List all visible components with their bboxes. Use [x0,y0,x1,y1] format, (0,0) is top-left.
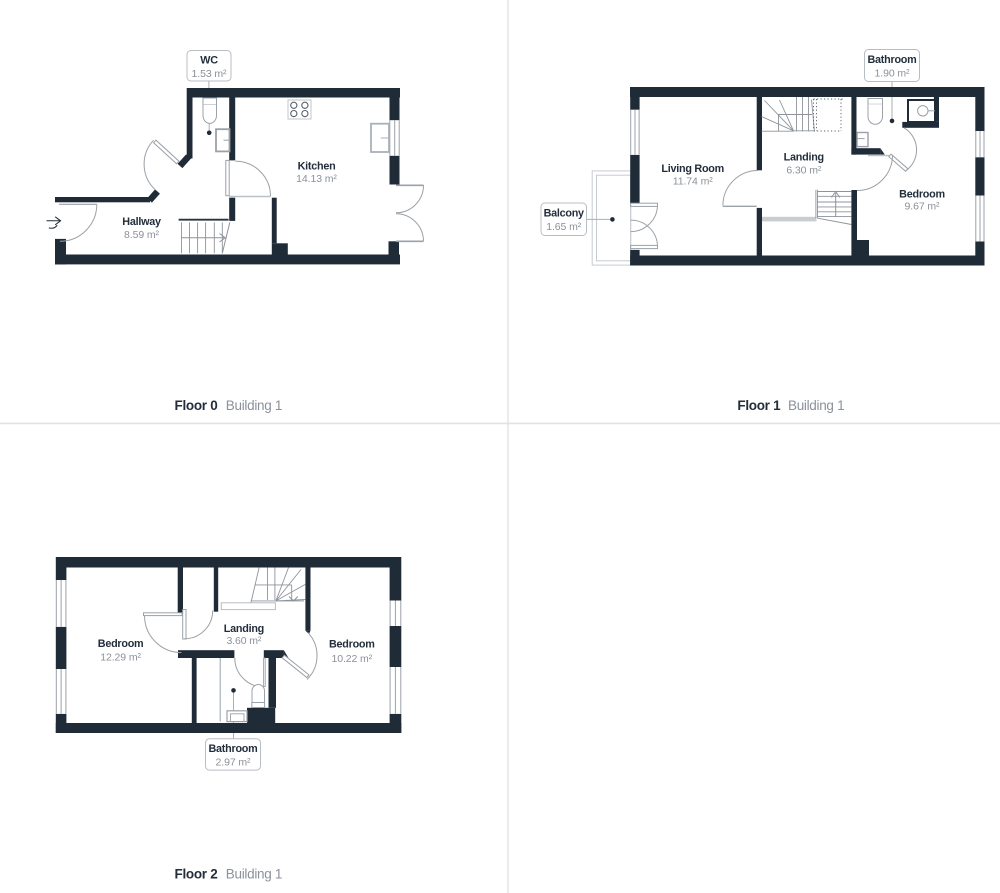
svg-text:Bedroom: Bedroom [98,638,144,650]
svg-text:2.97 m²: 2.97 m² [216,756,251,768]
svg-text:Bedroom: Bedroom [899,188,945,200]
svg-text:1.90 m²: 1.90 m² [875,67,910,79]
svg-text:WC: WC [200,55,218,67]
svg-text:Kitchen: Kitchen [298,161,336,173]
svg-text:Landing: Landing [224,623,264,635]
svg-text:14.13 m²: 14.13 m² [296,173,337,185]
svg-text:Floor 1: Floor 1 [737,398,781,413]
svg-text:1.65 m²: 1.65 m² [546,221,581,233]
svg-text:Floor 2: Floor 2 [175,866,218,881]
svg-text:12.29 m²: 12.29 m² [100,652,141,664]
svg-text:Floor 0: Floor 0 [175,398,218,413]
svg-text:11.74 m²: 11.74 m² [673,175,713,187]
svg-text:Hallway: Hallway [122,216,161,228]
svg-text:Bathroom: Bathroom [209,743,258,755]
svg-text:Building 1: Building 1 [788,398,844,413]
svg-text:10.22 m²: 10.22 m² [331,653,372,665]
svg-text:Living Room: Living Room [661,163,724,175]
svg-text:Bedroom: Bedroom [329,639,375,651]
svg-text:Building 1: Building 1 [226,398,282,413]
svg-text:3.60 m²: 3.60 m² [226,635,261,647]
svg-text:Building 1: Building 1 [226,866,282,881]
svg-text:Bathroom: Bathroom [868,54,917,66]
svg-text:9.67 m²: 9.67 m² [905,201,940,213]
svg-text:1.53 m²: 1.53 m² [192,68,227,80]
svg-text:Balcony: Balcony [544,207,584,219]
svg-text:8.59 m²: 8.59 m² [124,229,159,241]
svg-text:Landing: Landing [784,152,824,164]
svg-text:6.30 m²: 6.30 m² [786,164,821,176]
